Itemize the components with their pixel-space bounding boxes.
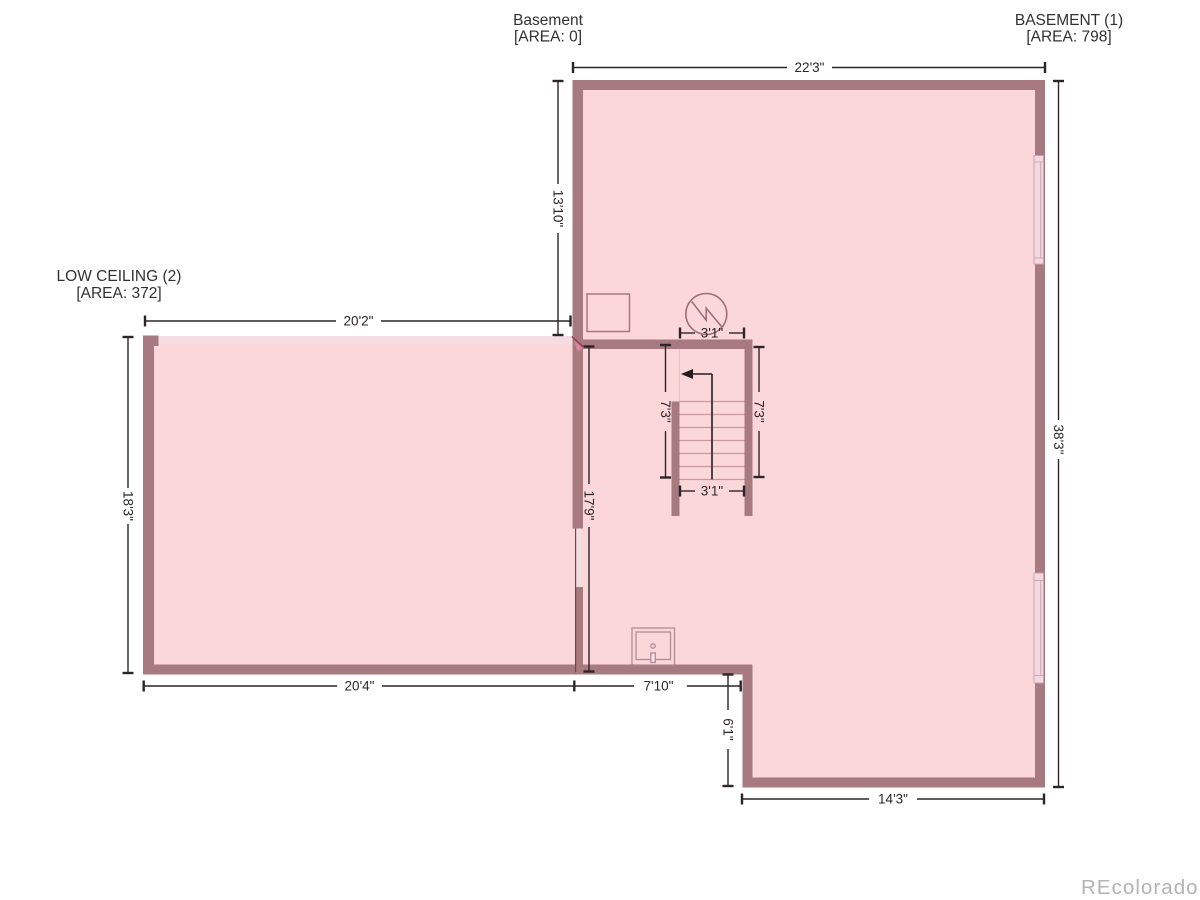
svg-text:14'3": 14'3" bbox=[878, 792, 908, 807]
svg-text:7'3": 7'3" bbox=[752, 400, 767, 423]
svg-text:[AREA: 372]: [AREA: 372] bbox=[76, 285, 161, 302]
svg-text:3'1": 3'1" bbox=[701, 484, 724, 499]
svg-text:[AREA: 0]: [AREA: 0] bbox=[514, 29, 582, 46]
svg-text:LOW CEILING (2): LOW CEILING (2) bbox=[57, 268, 182, 285]
svg-text:18'3": 18'3" bbox=[121, 491, 136, 521]
svg-text:[AREA: 798]: [AREA: 798] bbox=[1026, 29, 1111, 46]
svg-text:20'4": 20'4" bbox=[345, 679, 375, 694]
svg-text:3'1": 3'1" bbox=[701, 326, 724, 341]
svg-text:13'10": 13'10" bbox=[551, 190, 566, 228]
svg-text:22'3": 22'3" bbox=[795, 60, 825, 75]
svg-text:Basement: Basement bbox=[513, 12, 583, 29]
svg-text:BASEMENT (1): BASEMENT (1) bbox=[1015, 12, 1123, 29]
svg-text:38'3": 38'3" bbox=[1051, 425, 1066, 455]
svg-text:17'9": 17'9" bbox=[582, 491, 597, 521]
svg-text:20'2": 20'2" bbox=[344, 314, 374, 329]
svg-text:7'3": 7'3" bbox=[658, 400, 673, 423]
svg-text:REcolorado: REcolorado bbox=[1081, 876, 1199, 899]
svg-text:7'10": 7'10" bbox=[644, 679, 674, 694]
svg-text:6'1": 6'1" bbox=[721, 718, 736, 741]
